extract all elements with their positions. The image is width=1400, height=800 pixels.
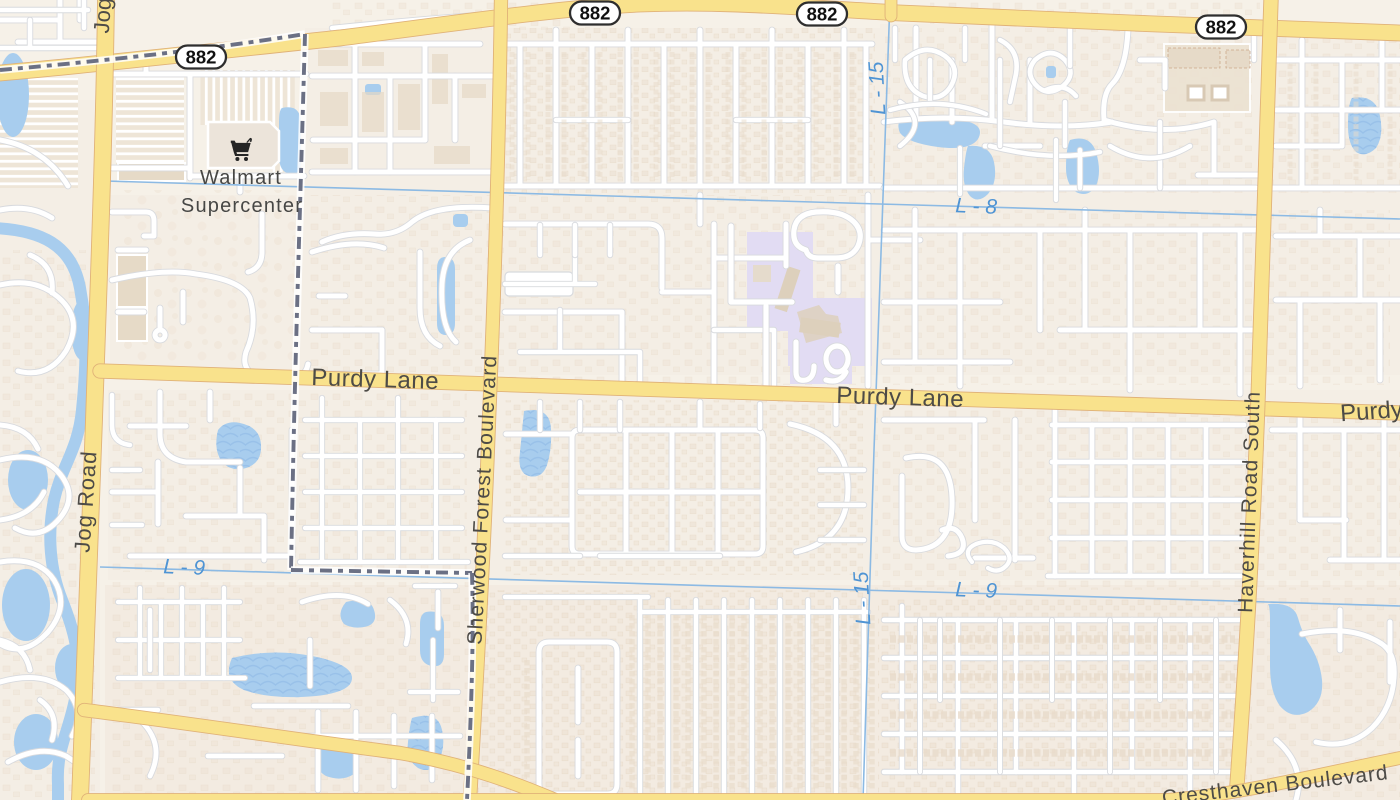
svg-text:L - 9: L - 9: [955, 578, 998, 602]
svg-text:882: 882: [186, 47, 217, 68]
svg-text:L - 15: L - 15: [865, 61, 891, 116]
svg-text:Purdy Lane: Purdy Lane: [311, 364, 440, 395]
svg-text:882: 882: [1206, 17, 1237, 38]
svg-text:Walmart: Walmart: [200, 167, 282, 189]
svg-text:Jog: Jog: [89, 0, 116, 34]
svg-text:882: 882: [580, 3, 611, 24]
svg-text:Purdy: Purdy: [1339, 396, 1400, 427]
svg-text:Purdy Lane: Purdy Lane: [836, 382, 965, 413]
svg-text:L - 9: L - 9: [163, 555, 206, 579]
svg-text:882: 882: [807, 4, 838, 25]
svg-text:L - 8: L - 8: [955, 194, 998, 218]
svg-text:Supercenter: Supercenter: [181, 195, 303, 217]
svg-text:L - 15: L - 15: [850, 571, 876, 626]
